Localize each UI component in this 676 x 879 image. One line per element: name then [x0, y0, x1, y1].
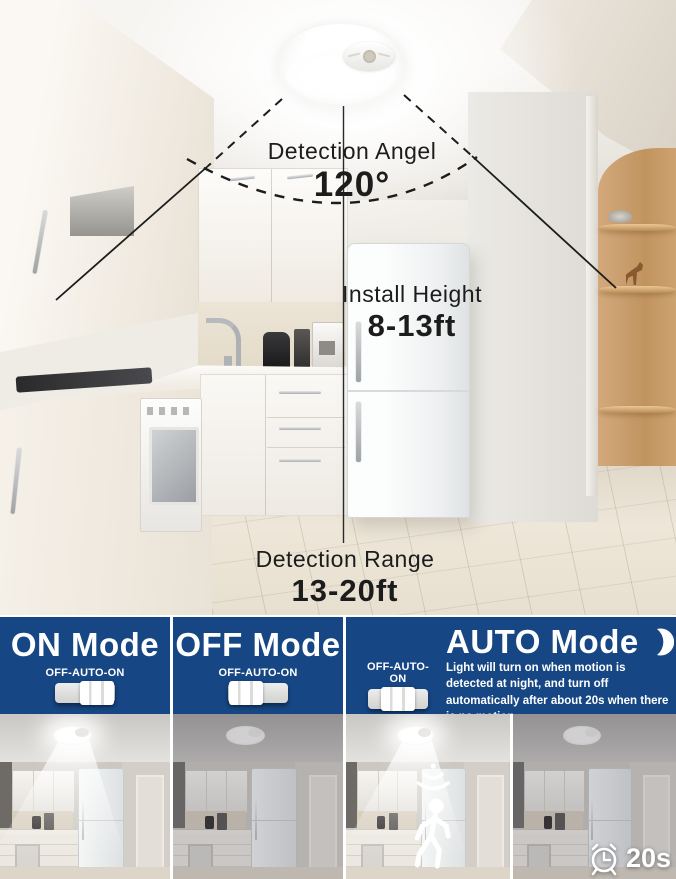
walking-person-icon: [417, 800, 448, 867]
mode-slide-switch: [368, 689, 428, 709]
kitchen-photo-main: Detection Angel 120° Install Height 8-13…: [0, 0, 676, 615]
install-height-annotation: Install Height 8-13ft: [342, 281, 482, 344]
auto-off-timer: 20s: [587, 840, 671, 876]
install-height-value: 8-13ft: [342, 308, 482, 344]
detection-angle-label: Detection Angel: [268, 138, 437, 165]
auto-off-time: 20s: [626, 843, 671, 874]
switch-label: OFF-AUTO-ON: [360, 661, 436, 685]
switch-knob: [229, 681, 263, 705]
off-mode-panel: OFF Mode OFF-AUTO-ON: [173, 617, 343, 879]
on-mode-header: ON Mode OFF-AUTO-ON: [0, 617, 170, 714]
motion-waves-icon: [424, 774, 442, 778]
moon-icon: [648, 628, 674, 656]
detection-angle-annotation: Detection Angel 120°: [268, 138, 437, 205]
auto-mode-title: AUTO Mode: [446, 623, 639, 661]
mode-slide-switch: [228, 683, 288, 703]
on-mode-title: ON Mode: [0, 626, 170, 664]
motion-dot-icon: [431, 763, 436, 768]
auto-mode-header: AUTO Mode OFF-AUTO-ON Light will turn on…: [346, 617, 676, 714]
detection-range-annotation: Detection Range 13-20ft: [256, 546, 435, 609]
motion-detected-icons: [346, 714, 510, 879]
detection-range-label: Detection Range: [256, 546, 435, 573]
auto-mode-panel: AUTO Mode OFF-AUTO-ON Light will turn on…: [346, 617, 676, 879]
install-height-label: Install Height: [342, 281, 482, 308]
ceiling-light-small: [53, 726, 92, 746]
detection-range-value: 13-20ft: [256, 573, 435, 609]
kitchen-photo-motion-detected: [346, 714, 510, 879]
switch-knob: [381, 687, 415, 711]
off-mode-title: OFF Mode: [173, 626, 343, 664]
off-mode-header: OFF Mode OFF-AUTO-ON: [173, 617, 343, 714]
switch-label: OFF-AUTO-ON: [173, 667, 343, 679]
alarm-clock-icon: [587, 840, 621, 876]
mode-slide-switch: [55, 683, 115, 703]
kitchen-photo-light-on: [0, 714, 170, 879]
detection-annotation-lines: [0, 0, 676, 615]
kitchen-photo-light-off: [173, 714, 343, 879]
kitchen-photo-no-motion: 20s: [513, 714, 676, 879]
switch-knob: [80, 681, 114, 705]
auto-mode-description: Light will turn on when motion is detect…: [446, 660, 672, 714]
switch-label: OFF-AUTO-ON: [0, 667, 170, 679]
product-infographic: Detection Angel 120° Install Height 8-13…: [0, 0, 676, 879]
on-mode-panel: ON Mode OFF-AUTO-ON: [0, 617, 170, 879]
detection-angle-value: 120°: [268, 165, 437, 205]
